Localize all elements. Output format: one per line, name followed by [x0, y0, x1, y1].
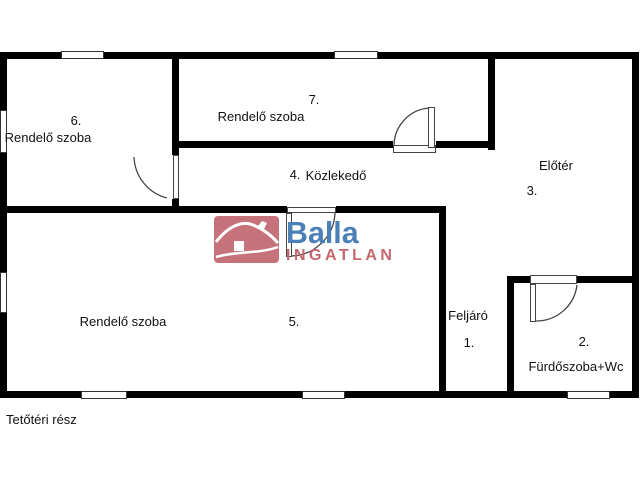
room1-name: Feljáró: [448, 309, 488, 323]
window-room7-top: [334, 51, 378, 59]
room4-number: 4.: [290, 168, 301, 182]
door-arc-room2: [536, 285, 577, 321]
window-room2-bottom: [567, 391, 610, 399]
attic-section-note: Tetőtéri rész: [6, 412, 77, 427]
room6-name: Rendelő szoba: [5, 131, 92, 145]
floorplan-canvas: 6. Rendelő szoba 7. Rendelő szoba 4. Köz…: [0, 0, 640, 480]
door-leaf-room6: [173, 155, 179, 199]
room4-name: Közlekedő: [306, 169, 367, 183]
wall-room5-right: [439, 206, 446, 398]
window-room5-bottom2: [302, 391, 345, 399]
room7-number: 7.: [309, 93, 320, 107]
door-leaf-room2: [530, 284, 536, 322]
door-threshold-room5: [287, 207, 336, 213]
balla-house-icon: [214, 216, 279, 263]
balla-ingatlan-logo: Balla INGATLAN: [214, 216, 395, 264]
wall-room2-left: [507, 276, 514, 398]
room1-number: 1.: [464, 336, 475, 350]
balla-logo-subbrand: INGATLAN: [286, 248, 395, 264]
window-room5-left: [0, 272, 7, 313]
wall-room7-hall: [488, 52, 495, 150]
room5-number: 5.: [289, 315, 300, 329]
room3-number: 3.: [527, 184, 538, 198]
wall-room7-corridor: [172, 141, 495, 148]
door-arc-room6: [134, 157, 167, 198]
wall-corridor-room5: [0, 206, 446, 213]
room3-name: Előtér: [539, 159, 573, 173]
window-room5-bottom1: [81, 391, 127, 399]
door-threshold-room2: [530, 275, 577, 284]
room5-name: Rendelő szoba: [80, 315, 167, 329]
window-room6-top: [61, 51, 104, 59]
room6-number: 6.: [71, 114, 82, 128]
balla-logo-brand: Balla: [286, 220, 393, 246]
room2-number: 2.: [579, 335, 590, 349]
wall-outer-left: [0, 52, 7, 398]
balla-logo-text: Balla INGATLAN: [286, 220, 395, 264]
room7-name: Rendelő szoba: [218, 110, 305, 124]
wall-outer-right: [632, 52, 639, 398]
door-leaf-room7: [428, 107, 435, 148]
room2-name: Fürdőszoba+Wc: [528, 360, 623, 374]
